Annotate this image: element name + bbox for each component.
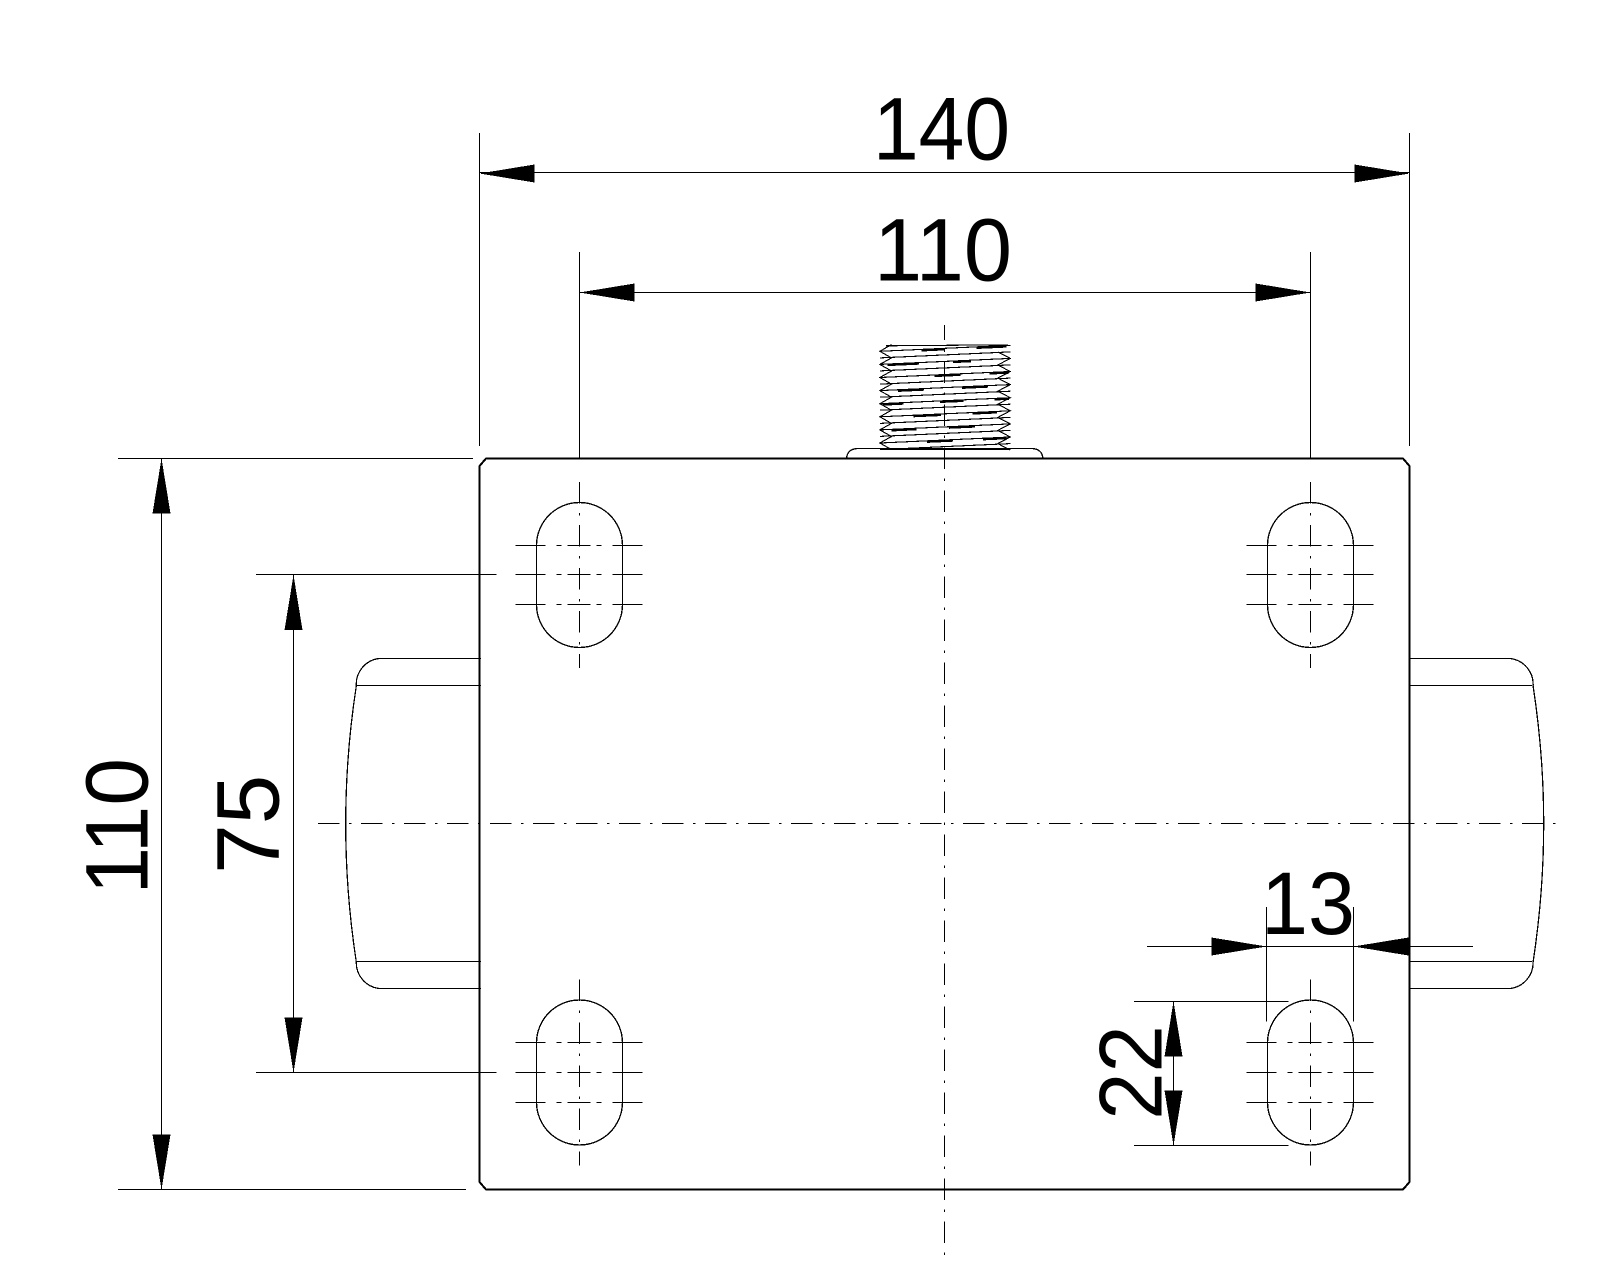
- svg-text:22: 22: [1080, 1025, 1180, 1120]
- svg-text:110: 110: [67, 758, 167, 895]
- svg-text:13: 13: [1261, 853, 1355, 953]
- svg-text:110: 110: [874, 199, 1012, 299]
- svg-text:140: 140: [873, 79, 1010, 179]
- svg-text:75: 75: [198, 775, 298, 874]
